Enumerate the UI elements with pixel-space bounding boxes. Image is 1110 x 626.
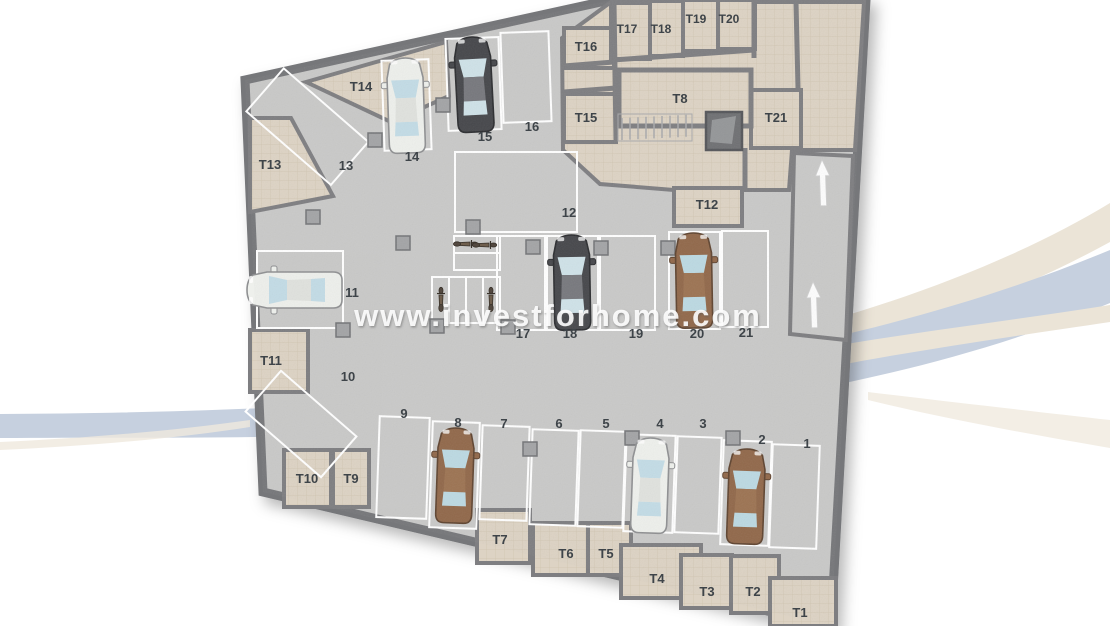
spot-label-8: 8	[454, 415, 461, 430]
room-label-T5: T5	[598, 546, 613, 561]
room-label-T13: T13	[259, 157, 281, 172]
spot-label-4: 4	[656, 416, 664, 431]
room-label-T7: T7	[492, 532, 507, 547]
spot-label-12: 12	[562, 205, 576, 220]
room-label-T16: T16	[575, 39, 597, 54]
spot-label-6: 6	[555, 416, 562, 431]
spot-label-10: 10	[341, 369, 355, 384]
room-label-T11: T11	[260, 353, 282, 368]
spot-label-9: 9	[400, 406, 407, 421]
spot-label-16: 16	[525, 119, 539, 134]
watermark-text: www.investforhome.com	[353, 298, 762, 333]
spot-label-3: 3	[699, 416, 706, 431]
room-label-T10: T10	[296, 471, 318, 486]
room-label-T1: T1	[792, 605, 807, 620]
room-label-T17: T17	[617, 22, 638, 36]
room-label-T20: T20	[719, 12, 740, 26]
room-label-T4: T4	[649, 571, 665, 586]
room-label-T18: T18	[651, 22, 672, 36]
room-label-T12: T12	[696, 197, 718, 212]
spot-label-5: 5	[602, 416, 609, 431]
room-label-T15: T15	[575, 110, 597, 125]
spot-label-1: 1	[803, 436, 810, 451]
swoosh-cream-wedge	[868, 392, 1110, 448]
room-label-T19: T19	[686, 12, 707, 26]
room-label-T9: T9	[343, 471, 358, 486]
room-label-T8: T8	[672, 91, 687, 106]
floor-plan-canvas: 1 2 3 4 5 6 7 8 9 10 11 12 13 14 15 16 1…	[0, 0, 1110, 626]
room-label-T6: T6	[558, 546, 573, 561]
spot-label-14: 14	[405, 149, 420, 164]
room-label-T3: T3	[699, 584, 714, 599]
room-label-T14: T14	[350, 79, 373, 94]
spot-label-13: 13	[339, 158, 353, 173]
spot-label-15: 15	[478, 129, 492, 144]
spot-label-2: 2	[758, 432, 765, 447]
room-label-T21: T21	[765, 110, 787, 125]
spot-label-7: 7	[500, 416, 507, 431]
room-label-T2: T2	[745, 584, 760, 599]
